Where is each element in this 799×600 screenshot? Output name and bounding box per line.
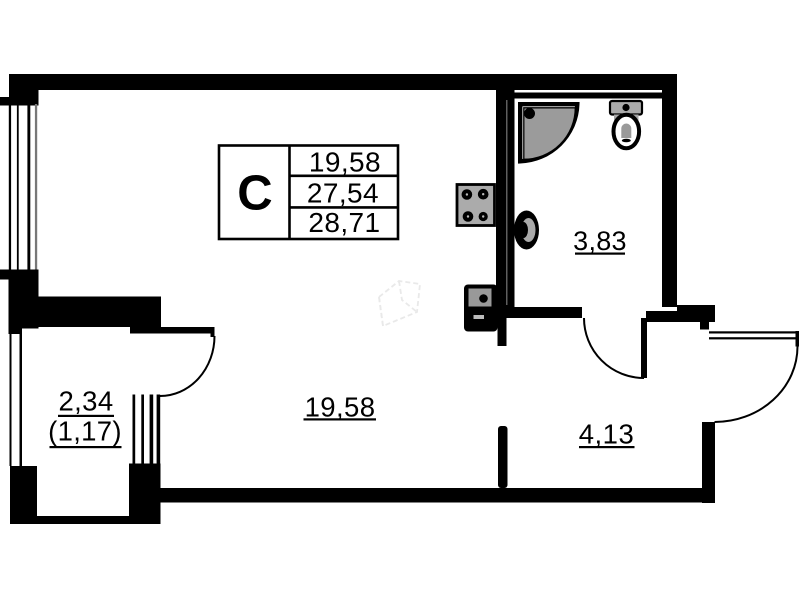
- svg-text:(1,17): (1,17): [48, 416, 122, 447]
- svg-text:4,13: 4,13: [579, 419, 635, 450]
- svg-text:28,71: 28,71: [308, 207, 380, 238]
- svg-text:C: C: [237, 167, 272, 221]
- svg-text:2,34: 2,34: [58, 386, 113, 417]
- svg-text:27,54: 27,54: [307, 178, 379, 209]
- svg-text:19,58: 19,58: [309, 147, 381, 178]
- svg-text:3,83: 3,83: [573, 226, 627, 256]
- svg-text:19,58: 19,58: [305, 392, 376, 423]
